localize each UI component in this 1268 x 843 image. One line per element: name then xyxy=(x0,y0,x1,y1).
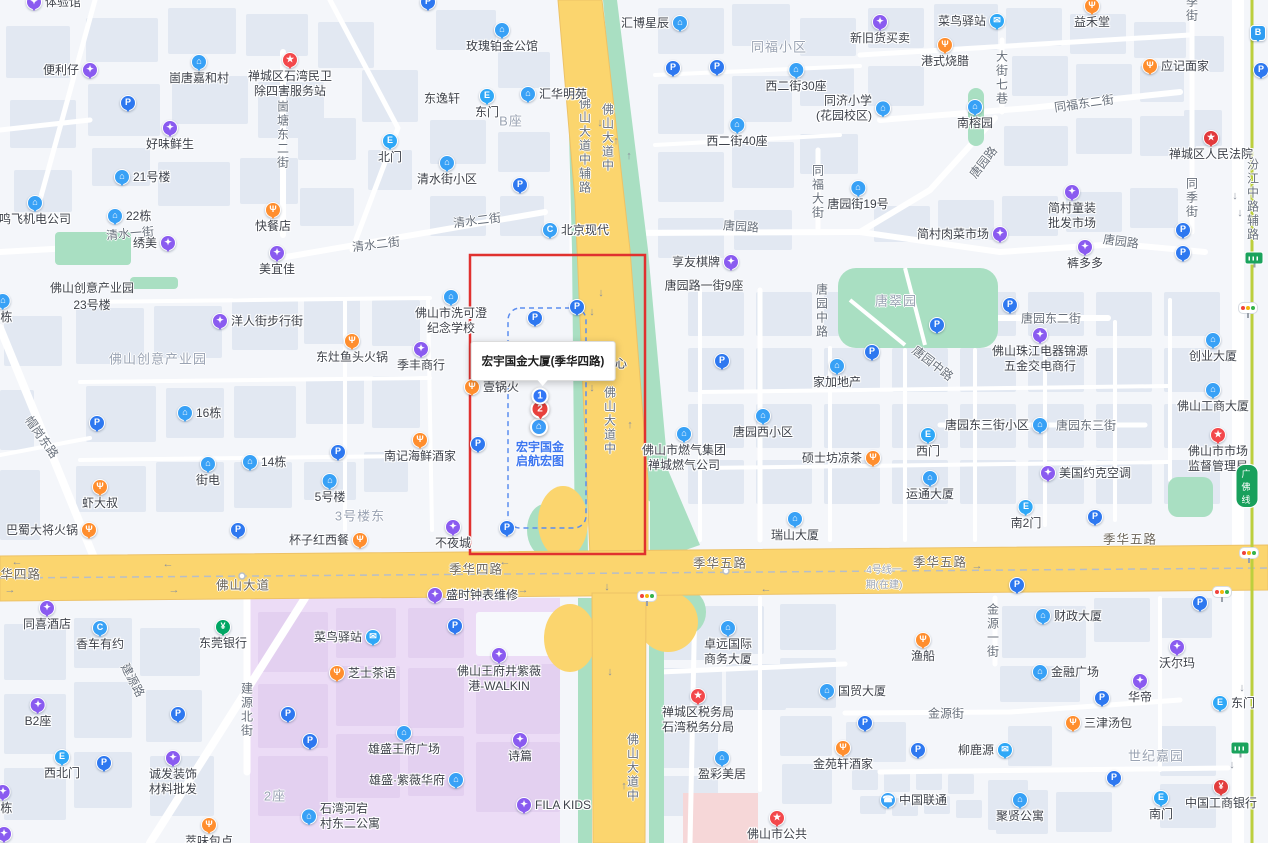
bld-icon: ⌂ xyxy=(242,454,258,470)
map-poi[interactable]: 简村肉菜市场✦ xyxy=(917,226,1008,242)
traffic-direction-arrow-icon: ↑ xyxy=(613,135,619,147)
p-icon: P xyxy=(527,310,543,326)
map-poi[interactable]: Ψ港式烧腊 xyxy=(921,37,969,69)
p-icon: P xyxy=(120,95,136,111)
map-poi[interactable]: P xyxy=(170,706,186,722)
area-label: 唐翠园 xyxy=(875,291,917,310)
map-poi[interactable]: ☎中国联通 xyxy=(880,792,947,808)
map-poi[interactable]: ¥中国工商银行 xyxy=(1185,779,1257,811)
map-poi[interactable]: ★禅城区人民法院 xyxy=(1169,130,1253,162)
car-icon: C xyxy=(92,620,108,636)
poi-label: 汇博星辰 xyxy=(621,16,669,31)
shop-icon: ✦ xyxy=(1132,673,1148,689)
bld-icon: ⌂ xyxy=(967,99,983,115)
shop-icon: ✦ xyxy=(212,313,228,329)
map-poi[interactable]: 菜鸟驿站✉ xyxy=(938,13,1005,29)
bld-icon: ⌂ xyxy=(922,470,938,486)
shop-icon: ✦ xyxy=(413,341,429,357)
exit-icon: E xyxy=(1153,790,1169,806)
poi-label: 柳鹿源 xyxy=(958,743,994,758)
traffic-direction-arrow-icon: ← xyxy=(12,556,23,568)
shop-icon: ✦ xyxy=(512,732,528,748)
star-icon: ★ xyxy=(690,688,706,704)
map-poi[interactable]: E西北门 xyxy=(44,749,80,781)
result-marker-1[interactable]: 1 xyxy=(532,388,549,405)
metro-line-badge: 广佛线 xyxy=(1237,465,1258,507)
shop-icon: ✦ xyxy=(39,600,55,616)
map-poi[interactable]: Ψ东灶鱼头火锅 xyxy=(316,333,388,365)
map-poi[interactable]: ✦华帝 xyxy=(1128,673,1152,705)
bld-icon: ⌂ xyxy=(114,169,130,185)
bld-icon: ⌂ xyxy=(27,195,43,211)
traffic-direction-arrow-icon: ↑ xyxy=(626,150,632,162)
p-icon: P xyxy=(89,415,105,431)
map-poi[interactable]: ⌂卓远国际 商务大厦 xyxy=(704,620,752,666)
road-label: 同季街 xyxy=(1184,177,1201,219)
map-poi[interactable]: E南2门 xyxy=(1011,499,1042,531)
p-icon: P xyxy=(170,706,186,722)
mail-icon: ✉ xyxy=(997,742,1013,758)
food-icon: Ψ xyxy=(915,632,931,648)
tel-icon: ☎ xyxy=(880,792,896,808)
p-icon: P xyxy=(929,317,945,333)
map-poi[interactable]: ⌂汇华明苑 xyxy=(520,86,587,102)
poi-label: 享友棋牌 xyxy=(672,255,720,270)
p-icon: P xyxy=(330,444,346,460)
p-icon: P xyxy=(857,715,873,731)
bld-icon: ⌂ xyxy=(107,208,123,224)
poi-label: 菜鸟驿站 xyxy=(314,630,362,645)
traffic-direction-arrow-icon: ↓ xyxy=(1232,190,1238,202)
map-poi[interactable]: P xyxy=(857,715,873,731)
bld-icon: ⌂ xyxy=(520,86,536,102)
map-poi[interactable]: ✦不夜城 xyxy=(435,519,471,551)
selected-poi-name-line2: 启航宏图 xyxy=(516,452,564,469)
poi-label: 美国约克空调 xyxy=(1059,466,1131,481)
bld-icon: ⌂ xyxy=(443,289,459,305)
poi-label: 壹锅火 xyxy=(483,380,519,395)
shop-icon: ✦ xyxy=(1169,639,1185,655)
map-poi[interactable]: ✦美宜佳 xyxy=(259,245,295,277)
bld-icon: ⌂ xyxy=(1032,417,1048,433)
map-poi[interactable]: P xyxy=(929,317,945,333)
bld-icon: ⌂ xyxy=(850,180,866,196)
map-poi[interactable]: ★禅城区税务局 石湾税务分局 xyxy=(662,688,734,734)
map-poi[interactable]: ⌂盈彩美居 xyxy=(698,750,746,782)
traffic-direction-arrow-icon: ↓ xyxy=(1237,207,1243,219)
bld-icon: ⌂ xyxy=(1032,664,1048,680)
map-poi[interactable]: Ψ南记海鲜酒家 xyxy=(384,432,456,464)
map-poi[interactable]: P xyxy=(910,742,926,758)
road-label: 佛山大道中辅路 xyxy=(577,97,594,195)
map-poi[interactable]: P xyxy=(527,310,543,326)
map-poi[interactable]: ⌂佛山市燃气集团 禅城燃气公司 xyxy=(642,426,726,472)
map-poi[interactable]: ¥东莞银行 xyxy=(199,619,247,651)
area-label: 佛山创意产业园 23号楼 xyxy=(50,279,134,313)
road-label: 佛山大道 xyxy=(216,575,270,594)
road-label: 季华四路 xyxy=(449,559,503,578)
map-poi[interactable]: P xyxy=(89,415,105,431)
map-poi[interactable]: ⌂运通大厦 xyxy=(906,470,954,502)
map-poi[interactable]: P xyxy=(499,520,515,536)
p-icon: P xyxy=(420,0,436,10)
bld-icon: ⌂ xyxy=(829,358,845,374)
map-poi[interactable]: ⌂14栋 xyxy=(242,454,286,470)
map-poi[interactable]: ⌂佛山工商大厦 xyxy=(1177,382,1249,414)
map-poi[interactable]: Ψ萃味包点 xyxy=(185,817,233,843)
p-icon: P xyxy=(1002,297,1018,313)
map-poi[interactable]: ⌂街电 xyxy=(196,456,220,488)
star-icon: ★ xyxy=(282,52,298,68)
map-poi[interactable]: E西门 xyxy=(916,427,940,459)
poi-label: 洋人街步行街 xyxy=(231,314,303,329)
map-poi[interactable]: ⌂22栋 xyxy=(107,208,151,224)
bld-icon: ⌂ xyxy=(787,511,803,527)
food-icon: Ψ xyxy=(937,37,953,53)
map-poi[interactable]: ✦沃尔玛 xyxy=(1159,639,1195,671)
poi-label: 巴蜀大将火锅 xyxy=(6,523,78,538)
bld-icon: ⌂ xyxy=(448,772,464,788)
map-poi[interactable]: ⌂唐园西小区 xyxy=(733,408,793,440)
map-poi[interactable]: ⌂财政大厦 xyxy=(1035,608,1102,624)
poi-label: 杯子红西餐 xyxy=(289,533,349,548)
poi-label: 北京现代 xyxy=(561,223,609,238)
map-poi[interactable]: P xyxy=(1002,297,1018,313)
food-icon: Ψ xyxy=(865,450,881,466)
map-poi[interactable]: P xyxy=(1009,577,1025,593)
traffic-direction-arrow-icon: ↓ xyxy=(589,382,595,394)
pr-icon: P xyxy=(280,706,296,722)
map-poi[interactable]: ✦新旧货买卖 xyxy=(850,14,910,46)
map-poi[interactable]: P xyxy=(1094,690,1110,706)
bld-icon: ⌂ xyxy=(322,473,338,489)
star-icon: ★ xyxy=(769,810,785,826)
food-icon: Ψ xyxy=(412,432,428,448)
map-poi[interactable]: Ψ虾大叔 xyxy=(82,479,118,511)
road-label: 佛山大道中 xyxy=(602,386,619,456)
pr-icon: P xyxy=(1175,245,1191,261)
map-poi[interactable]: ⌂鸣飞机电公司 xyxy=(0,195,71,227)
poi-label: 佛山市燃气集团 禅城燃气公司 xyxy=(642,443,726,472)
traffic-direction-arrow-icon: ↓ xyxy=(604,581,610,593)
bld-icon: ⌂ xyxy=(191,54,207,70)
exit-icon: E xyxy=(1212,695,1228,711)
map-poi[interactable]: ⌂雄盛王府广场 xyxy=(368,725,440,757)
p-icon: P xyxy=(499,520,515,536)
map-poi[interactable]: ⌂聚贤公寓 xyxy=(996,792,1044,824)
shop-icon: ✦ xyxy=(160,235,176,251)
food-icon: Ψ xyxy=(1065,715,1081,731)
map-poi[interactable]: C香车有约 xyxy=(76,620,124,652)
map-poi[interactable]: ✦FILA KIDS xyxy=(516,797,591,813)
map-poi[interactable]: ⌂21号楼 xyxy=(114,169,170,185)
bus-icon: B xyxy=(1250,25,1266,41)
shop-icon: ✦ xyxy=(162,120,178,136)
area-label: 世纪嘉园 xyxy=(1128,746,1184,765)
shop-icon: ✦ xyxy=(26,0,42,10)
bld-icon: ⌂ xyxy=(729,117,745,133)
map-poi[interactable]: Ψ芝士茶语 xyxy=(329,665,396,681)
map-poi[interactable]: ✦诗篇 xyxy=(508,732,532,764)
road-label: 佛山大道中 xyxy=(625,733,642,803)
poi-label: 便利仔 xyxy=(43,63,79,78)
traffic-light-icon xyxy=(1212,586,1232,598)
p-icon: P xyxy=(96,755,112,771)
map-poi[interactable]: P xyxy=(470,436,486,452)
pr-icon: P xyxy=(447,618,463,634)
poi-label: FILA KIDS xyxy=(535,798,591,813)
map-poi[interactable]: 汇博星辰⌂ xyxy=(621,15,688,31)
map-poi[interactable]: ⌂国贸大厦 xyxy=(819,683,886,699)
map-poi[interactable]: E北门 xyxy=(378,133,402,165)
poi-label: 同济小学 (花园校区) xyxy=(816,93,872,122)
map-poi[interactable]: P xyxy=(1192,595,1208,611)
map-poi[interactable]: Ψ金苑轩酒家 xyxy=(813,740,873,772)
food-icon: Ψ xyxy=(1084,0,1100,14)
road-label: 季街 xyxy=(1184,0,1201,23)
map-poi[interactable]: ⌂南榕园 xyxy=(957,99,993,131)
p-icon: P xyxy=(1106,770,1122,786)
exit-icon: E xyxy=(1018,499,1034,515)
map-poi[interactable]: B xyxy=(1250,25,1266,41)
bld-icon: ⌂ xyxy=(439,155,455,171)
map-poi[interactable]: P xyxy=(1175,222,1191,238)
map-poi[interactable]: P xyxy=(569,299,585,315)
map-poi[interactable]: P xyxy=(230,522,246,538)
map-poi[interactable]: P xyxy=(665,60,681,76)
map-poi[interactable]: ✦美国约克空调 xyxy=(1040,465,1131,481)
map-poi[interactable]: 柳鹿源✉ xyxy=(958,742,1013,758)
bld-icon: ⌂ xyxy=(301,808,317,824)
poi-label: 绣美 xyxy=(133,236,157,251)
p-icon: P xyxy=(230,522,246,538)
map-poi[interactable]: P xyxy=(709,59,725,75)
poi-label: 佛山市洗可澄 纪念学校 xyxy=(415,306,487,335)
map-poi[interactable]: P xyxy=(330,444,346,460)
p-icon: P xyxy=(864,344,880,360)
map-poi[interactable]: P xyxy=(96,755,112,771)
map-poi[interactable]: ✦体验馆 xyxy=(26,0,81,10)
p-icon: P xyxy=(1192,595,1208,611)
poi-label: 16栋 xyxy=(196,406,221,421)
map-poi[interactable]: 享友棋牌✦ xyxy=(672,254,739,270)
poi-label: 禅城区税务局 石湾税务分局 xyxy=(662,705,734,734)
food-icon: Ψ xyxy=(265,202,281,218)
map-poi[interactable]: 唐园东三街小区⌂ xyxy=(945,417,1048,433)
map-poi[interactable]: Ψ应记面家 xyxy=(1142,58,1209,74)
map-poi[interactable]: ⌂5号楼 xyxy=(315,473,346,505)
shop-icon: ✦ xyxy=(427,587,443,603)
traffic-light-icon xyxy=(1239,547,1259,559)
map-poi[interactable]: 杯子红西餐Ψ xyxy=(289,532,368,548)
map-poi[interactable]: ✦好味鲜生 xyxy=(146,120,194,152)
area-label: 4号线一 期(在建) xyxy=(866,561,903,591)
traffic-direction-arrow-icon: ↓ xyxy=(598,287,604,299)
poi-label: 14栋 xyxy=(261,455,286,470)
map-poi[interactable]: ★佛山市公共 xyxy=(747,810,807,842)
map-poi[interactable]: Ψ三津汤包 xyxy=(1065,715,1132,731)
food-icon: Ψ xyxy=(352,532,368,548)
poi-tooltip[interactable]: 宏宇国金大厦(季华四路) xyxy=(471,341,616,381)
food-icon: Ψ xyxy=(464,379,480,395)
map-poi[interactable]: ⌂瑞山大厦 xyxy=(771,511,819,543)
poi-label: 盛时钟表维修 xyxy=(446,588,518,603)
map-poi[interactable]: 巴蜀大将火锅Ψ xyxy=(6,522,97,538)
poi-label: 佛山珠江电器锦源 五金交电商行 xyxy=(992,344,1088,373)
map-poi[interactable]: P xyxy=(1253,62,1268,78)
map-poi[interactable]: ⌂石湾河宕 村东二公寓 xyxy=(301,801,380,830)
shop-icon: ✦ xyxy=(1032,327,1048,343)
traffic-direction-arrow-icon: ↓ xyxy=(1239,682,1245,694)
map-poi[interactable]: ⌂玫瑰铂金公馆 xyxy=(466,22,538,54)
bld-icon: ⌂ xyxy=(1012,792,1028,808)
map-poi[interactable]: P xyxy=(864,344,880,360)
traffic-light-icon xyxy=(637,590,657,602)
map-poi[interactable]: ⌂创业大厦 xyxy=(1189,332,1237,364)
map-poi[interactable]: ⌂崮唐嘉和村 xyxy=(169,54,229,86)
poi-label: 中国联通 xyxy=(899,793,947,808)
poi-label: 佛山王府井紫薇 港-WALKIN xyxy=(457,664,541,693)
map-poi[interactable]: ⌂佛山市洗可澄 纪念学校 xyxy=(415,289,487,335)
map-poi[interactable]: E南门 xyxy=(1149,790,1173,822)
area-label: 同福小区 xyxy=(751,37,807,56)
p-icon: P xyxy=(512,177,528,193)
map-poi[interactable]: ⌂金融广场 xyxy=(1032,664,1099,680)
traffic-direction-arrow-icon: ↓ xyxy=(589,306,595,318)
map-poi[interactable]: ✦同喜酒店 xyxy=(23,600,71,632)
map-poi[interactable]: ⌂2栋 xyxy=(0,293,12,325)
map-poi[interactable]: P xyxy=(1087,509,1103,525)
map-poi[interactable]: P xyxy=(420,0,436,10)
shop-icon: ✦ xyxy=(1077,239,1093,255)
area-label: 2座 xyxy=(264,786,286,805)
shop-icon: ✦ xyxy=(1064,184,1080,200)
map-poi[interactable]: ✦6栋 xyxy=(0,784,12,816)
traffic-direction-arrow-icon: ↓ xyxy=(607,666,613,678)
map-poi[interactable]: P xyxy=(280,706,296,722)
bld-icon: ⌂ xyxy=(177,405,193,421)
area-label: 佛山创意产业园 xyxy=(109,349,207,368)
map-poi[interactable]: ✦B2座 xyxy=(25,697,52,729)
map-poi[interactable]: Ψ壹锅火 xyxy=(464,379,519,395)
map-poi[interactable]: ⌂16栋 xyxy=(177,405,221,421)
map-poi[interactable]: ✦洋人街步行街 xyxy=(212,313,303,329)
poi-label: 东门 xyxy=(1231,696,1255,711)
map-poi[interactable]: P xyxy=(1106,770,1122,786)
shop-icon: ✦ xyxy=(165,750,181,766)
map-poi[interactable]: ✦季丰商行 xyxy=(397,341,445,373)
map-poi[interactable]: P xyxy=(1175,245,1191,261)
shop-icon: ✦ xyxy=(723,254,739,270)
p-icon: P xyxy=(910,742,926,758)
map-poi[interactable]: 便利仔✦ xyxy=(43,62,98,78)
map-viewport[interactable]: 佛山创意产业园 23号楼东逸轩唐园路一街9座中心佛山创意产业园3号楼东同福小区B… xyxy=(0,0,1268,843)
map-poi[interactable]: ⌂西二街30座 xyxy=(765,62,826,94)
map-poi[interactable]: ✦ xyxy=(0,826,12,842)
map-poi[interactable]: ✦佛山王府井紫薇 港-WALKIN xyxy=(457,647,541,693)
poi-label: 体验馆 xyxy=(45,0,81,9)
food-icon: Ψ xyxy=(835,740,851,756)
bld-icon: ⌂ xyxy=(1205,382,1221,398)
exit-icon: E xyxy=(920,427,936,443)
shop-icon: ✦ xyxy=(269,245,285,261)
exit-icon: E xyxy=(479,88,495,104)
map-poi[interactable]: P xyxy=(714,353,730,369)
poi-label: 汇华明苑 xyxy=(539,87,587,102)
bld-icon: ⌂ xyxy=(755,408,771,424)
shop-icon: ✦ xyxy=(516,797,532,813)
road-label: 唐园中路 xyxy=(814,283,831,339)
poi-label: 应记面家 xyxy=(1161,59,1209,74)
map-poi[interactable]: P xyxy=(120,95,136,111)
shop-icon: ✦ xyxy=(445,519,461,535)
map-poi[interactable]: 雄盛·紫薇华府⌂ xyxy=(369,772,464,788)
area-label: 唐园路一街9座 xyxy=(665,277,744,294)
map-poi[interactable]: E东门 xyxy=(1212,695,1255,711)
p-icon: P xyxy=(1253,62,1268,78)
map-poi[interactable]: ✦简村童装 批发市场 xyxy=(1048,184,1096,230)
poi-label: 财政大厦 xyxy=(1054,609,1102,624)
road-label: 金源街 xyxy=(928,705,964,722)
poi-label: 金融广场 xyxy=(1051,665,1099,680)
map-poi[interactable]: Ψ益禾堂 xyxy=(1074,0,1110,30)
p-icon: P xyxy=(470,436,486,452)
bld-icon: ⌂ xyxy=(1035,608,1051,624)
map-poi[interactable]: 同济小学 (花园校区)⌂ xyxy=(816,93,891,122)
traffic-direction-arrow-icon: ← xyxy=(761,583,772,595)
road-label: 唐园东三街 xyxy=(1056,417,1116,434)
mail-icon: ✉ xyxy=(365,629,381,645)
road-label: 大街七巷 xyxy=(994,50,1011,106)
map-poi[interactable]: ⌂唐园街19号 xyxy=(827,180,888,212)
map-poi[interactable]: ⌂家加地产 xyxy=(813,358,861,390)
p-icon: P xyxy=(1175,222,1191,238)
map-poi[interactable]: C北京现代 xyxy=(542,222,609,238)
road-label: 金源一街 xyxy=(985,603,1002,659)
map-poi[interactable]: E东门 xyxy=(475,88,499,120)
traffic-direction-arrow-icon: → xyxy=(972,560,983,572)
p-icon: P xyxy=(1009,577,1025,593)
gov-icon: ★ xyxy=(1203,130,1219,146)
exit-icon: E xyxy=(54,749,70,765)
map-poi[interactable]: ✦佛山珠江电器锦源 五金交电商行 xyxy=(992,327,1088,373)
traffic-direction-arrow-icon: → xyxy=(169,584,180,596)
map-poi[interactable]: ✦裤多多 xyxy=(1067,239,1103,271)
map-poi[interactable]: P xyxy=(302,733,318,749)
map-poi[interactable]: ✦诚发装饰 材料批发 xyxy=(149,750,197,796)
traffic-direction-arrow-icon: ← xyxy=(163,558,174,570)
poi-label: 芝士茶语 xyxy=(348,666,396,681)
map-poi[interactable]: ⌂清水街小区 xyxy=(417,155,477,187)
road-label: 季华五路 xyxy=(913,552,967,571)
map-poi[interactable]: ★禅城区石湾民卫 除四害服务站 xyxy=(248,52,332,98)
map-poi[interactable]: 硕士坊凉茶Ψ xyxy=(802,450,881,466)
map-poi[interactable]: 绣美✦ xyxy=(133,235,176,251)
map-poi[interactable]: Ψ快餐店 xyxy=(255,202,291,234)
road-label: 同福大街 xyxy=(810,164,827,220)
map-poi[interactable]: P xyxy=(447,618,463,634)
map-poi[interactable]: 菜鸟驿站✉ xyxy=(314,629,381,645)
map-poi[interactable]: P xyxy=(512,177,528,193)
map-poi[interactable]: ✦盛时钟表维修 xyxy=(427,587,518,603)
traffic-direction-arrow-icon: ↑ xyxy=(627,419,633,431)
map-poi[interactable]: ⌂西二街40座 xyxy=(706,117,767,149)
poi-label: 简村肉菜市场 xyxy=(917,227,989,242)
map-poi[interactable]: Ψ渔船 xyxy=(911,632,935,664)
road-label: 崮塘东二街 xyxy=(275,100,292,170)
p-icon: P xyxy=(302,733,318,749)
shop-icon: ✦ xyxy=(82,62,98,78)
